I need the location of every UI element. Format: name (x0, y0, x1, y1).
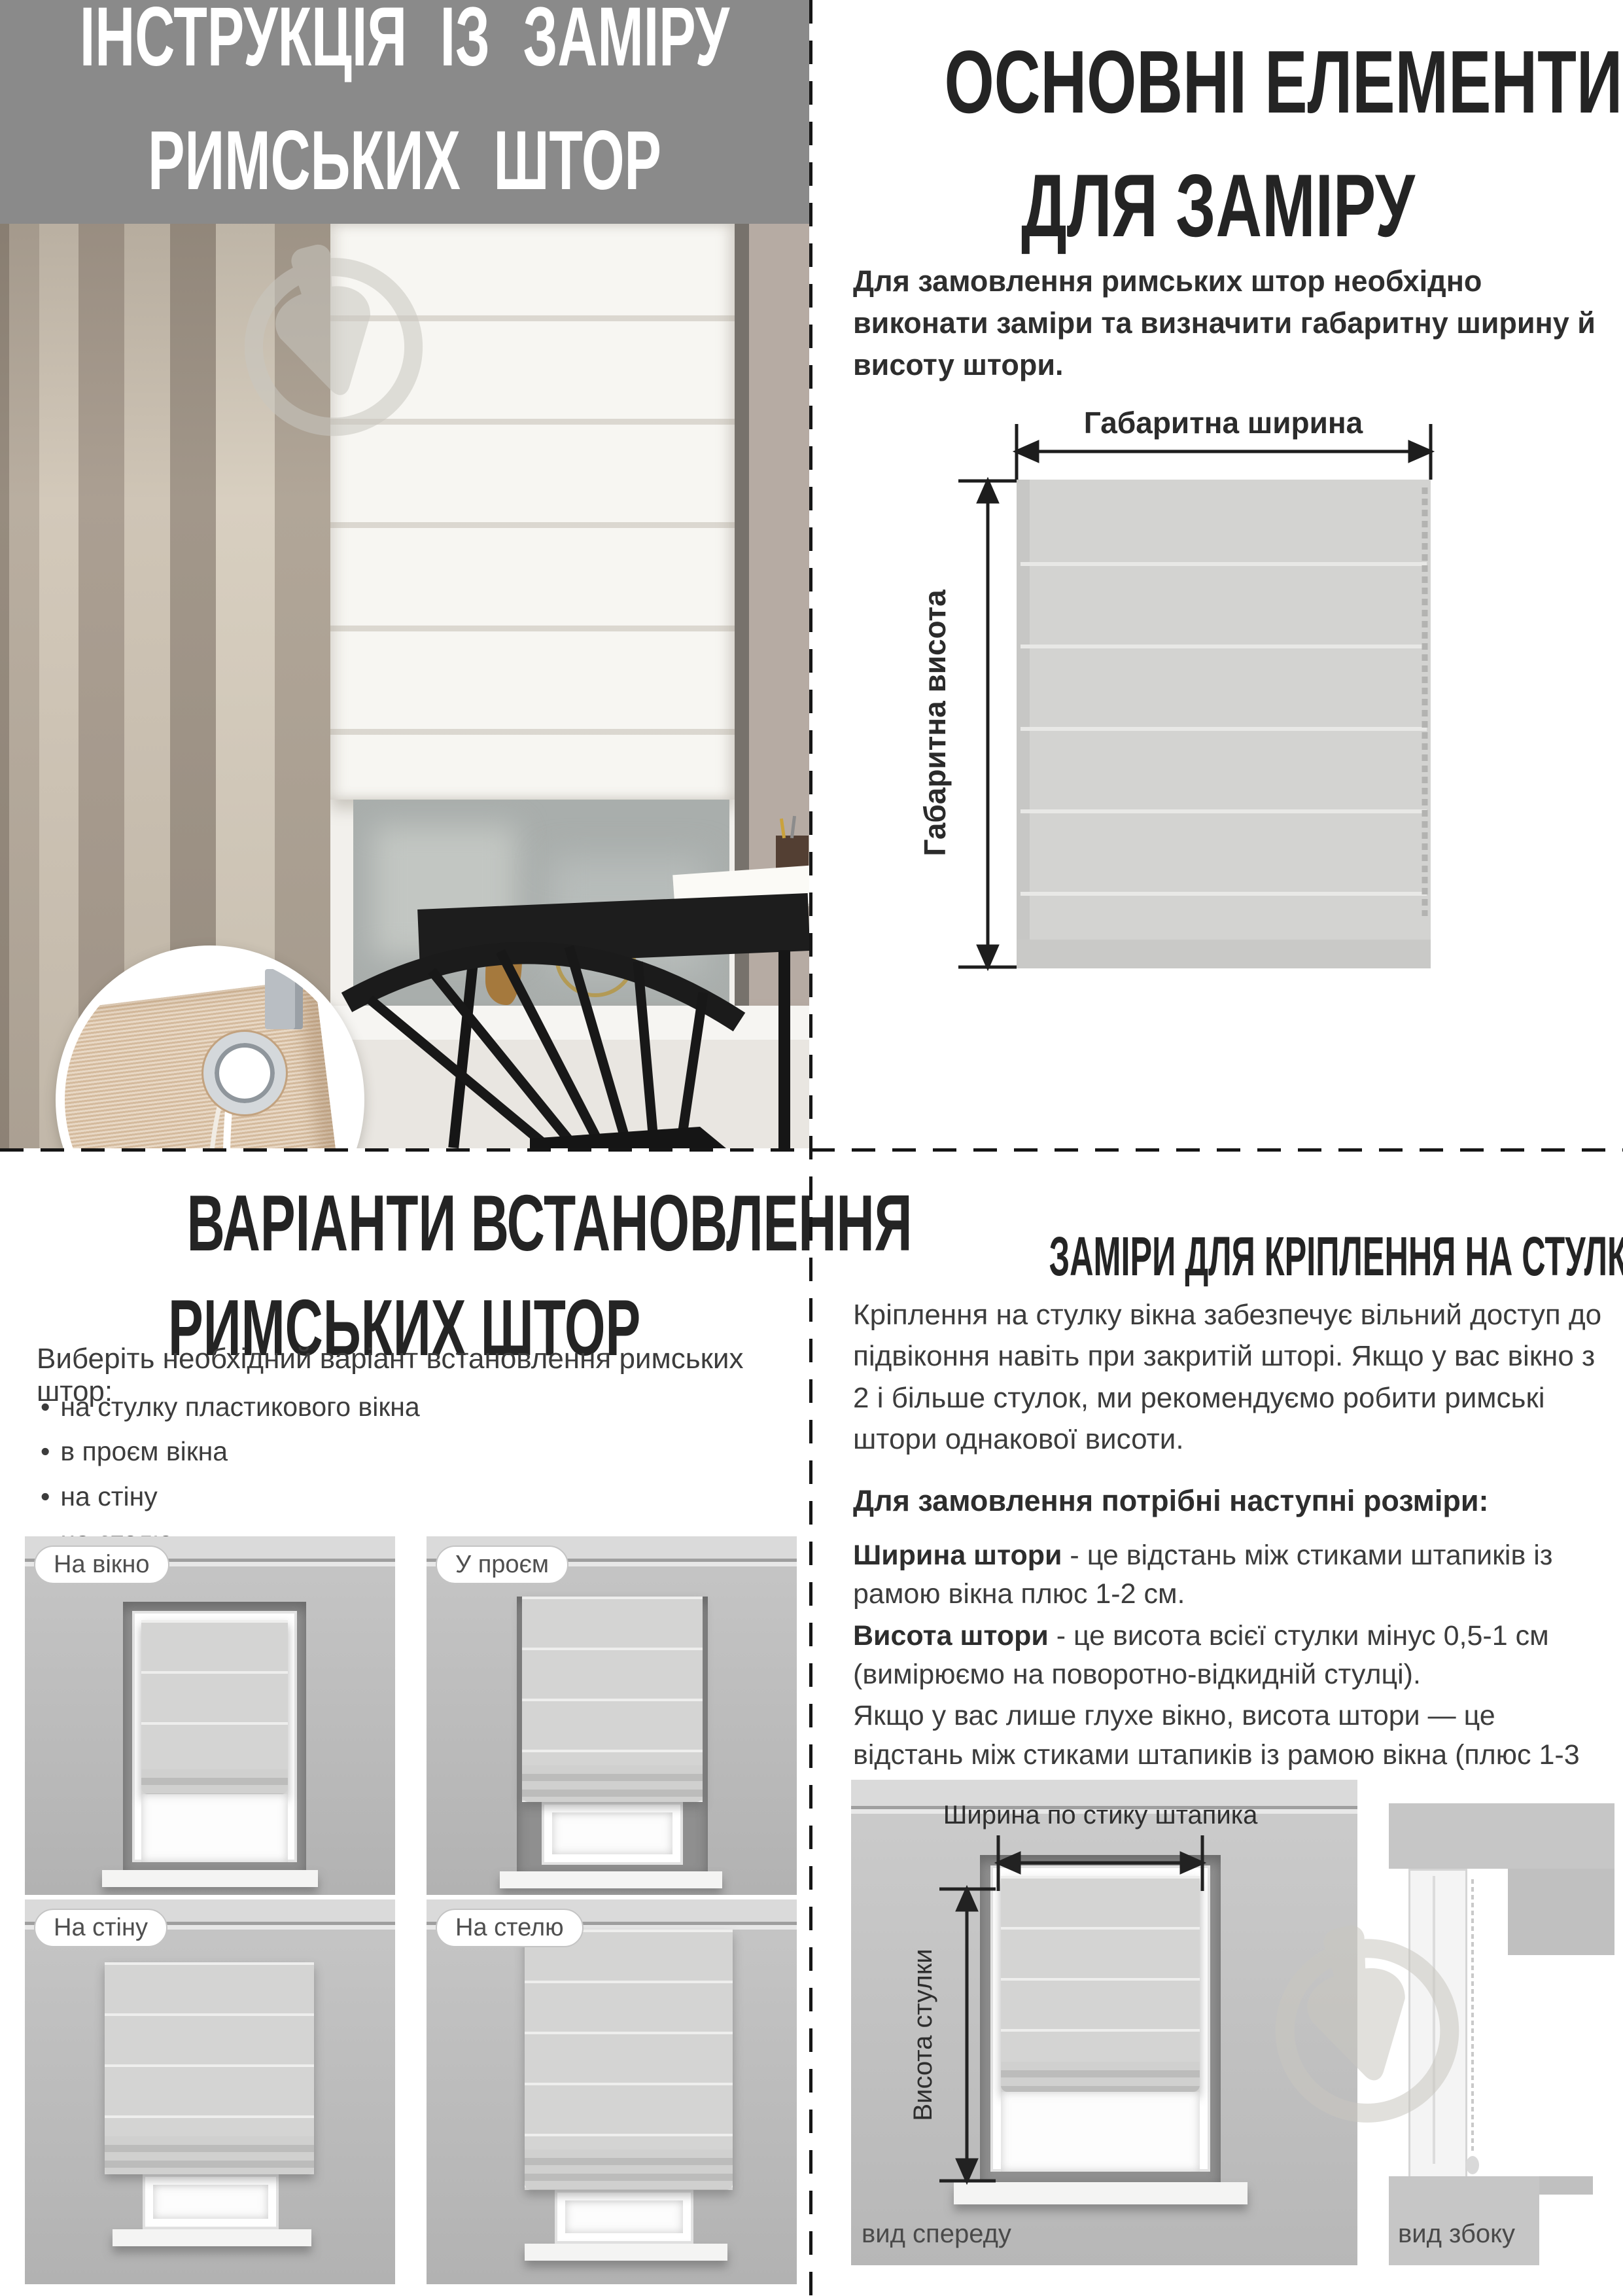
page-title-line1: ІНСТРУКЦІЯ ІЗ ЗАМІРУ (0, 0, 897, 112)
variant-card-on-sash: На вікно (25, 1536, 395, 1895)
wall-section-step (1508, 1869, 1614, 1955)
section-heading-sash-measure: ЗАМІРИ ДЛЯ КРІПЛЕННЯ НА СТУЛКУ ВІКНА (812, 1225, 1623, 1288)
side-view-label: вид збоку (1398, 2219, 1515, 2249)
order-sizes-intro: Для замовлення потрібні наступні розміри… (853, 1484, 1603, 1518)
desk-leg (778, 950, 790, 1148)
list-item: на стулку пластикового вікна (41, 1390, 793, 1424)
grommet-eyelet (203, 1032, 286, 1114)
size-definitions: Ширина штори - це відстань між стиками ш… (853, 1536, 1605, 1697)
overall-dimensions-diagram: Габаритна ширина Габаритна висота (811, 393, 1623, 1047)
width-definition: Ширина штори - це відстань між стиками ш… (853, 1536, 1605, 1614)
variant-card-in-opening: У проєм (427, 1536, 797, 1895)
wall-section-top (1389, 1803, 1614, 1869)
elements-intro-text: Для замовлення римських штор необхідно в… (853, 260, 1599, 386)
interior-photo (0, 224, 809, 1148)
list-item: на стіну (41, 1479, 793, 1514)
title-banner: ІНСТРУКЦІЯ ІЗ ЗАМІРУ РИМСЬКИХ ШТОР (0, 0, 809, 224)
brand-watermark-icon (1256, 1911, 1478, 2133)
height-definition: Висота штори - це висота всієї стулки мі… (853, 1617, 1605, 1695)
chain-weight (1466, 2156, 1479, 2174)
brand-watermark-icon (226, 230, 442, 446)
front-view-label: вид спереду (862, 2219, 1011, 2249)
variant-card-on-wall: На стіну (25, 1899, 395, 2284)
list-item: в проєм вікна (41, 1434, 793, 1469)
variant-label: У проєм (436, 1545, 568, 1584)
sill-section-step (1539, 2176, 1593, 2195)
variant-label: На стелю (436, 1909, 584, 1947)
sash-measure-paragraph: Кріплення на стулку вікна забезпечує віл… (853, 1294, 1603, 1460)
overall-width-label: Габаритна ширина (1084, 406, 1363, 440)
grommet-closeup-inset (56, 945, 364, 1148)
horizontal-dashed-divider (0, 1148, 1623, 1152)
spindle-chair (334, 930, 752, 1148)
variant-label: На вікно (34, 1545, 169, 1584)
variant-card-on-ceiling: На стелю (427, 1899, 797, 2284)
instruction-leaflet: ІНСТРУКЦІЯ ІЗ ЗАМІРУ РИМСЬКИХ ШТОР (0, 0, 1623, 2296)
variant-label: На стіну (34, 1909, 167, 1947)
page-title-line2: РИМСЬКИХ ШТОР (16, 112, 794, 236)
section-heading-elements: ОСНОВНІ ЕЛЕМЕНТИ ДЛЯ ЗАМІРУ (812, 34, 1623, 281)
overall-height-label: Габаритна висота (918, 590, 952, 857)
